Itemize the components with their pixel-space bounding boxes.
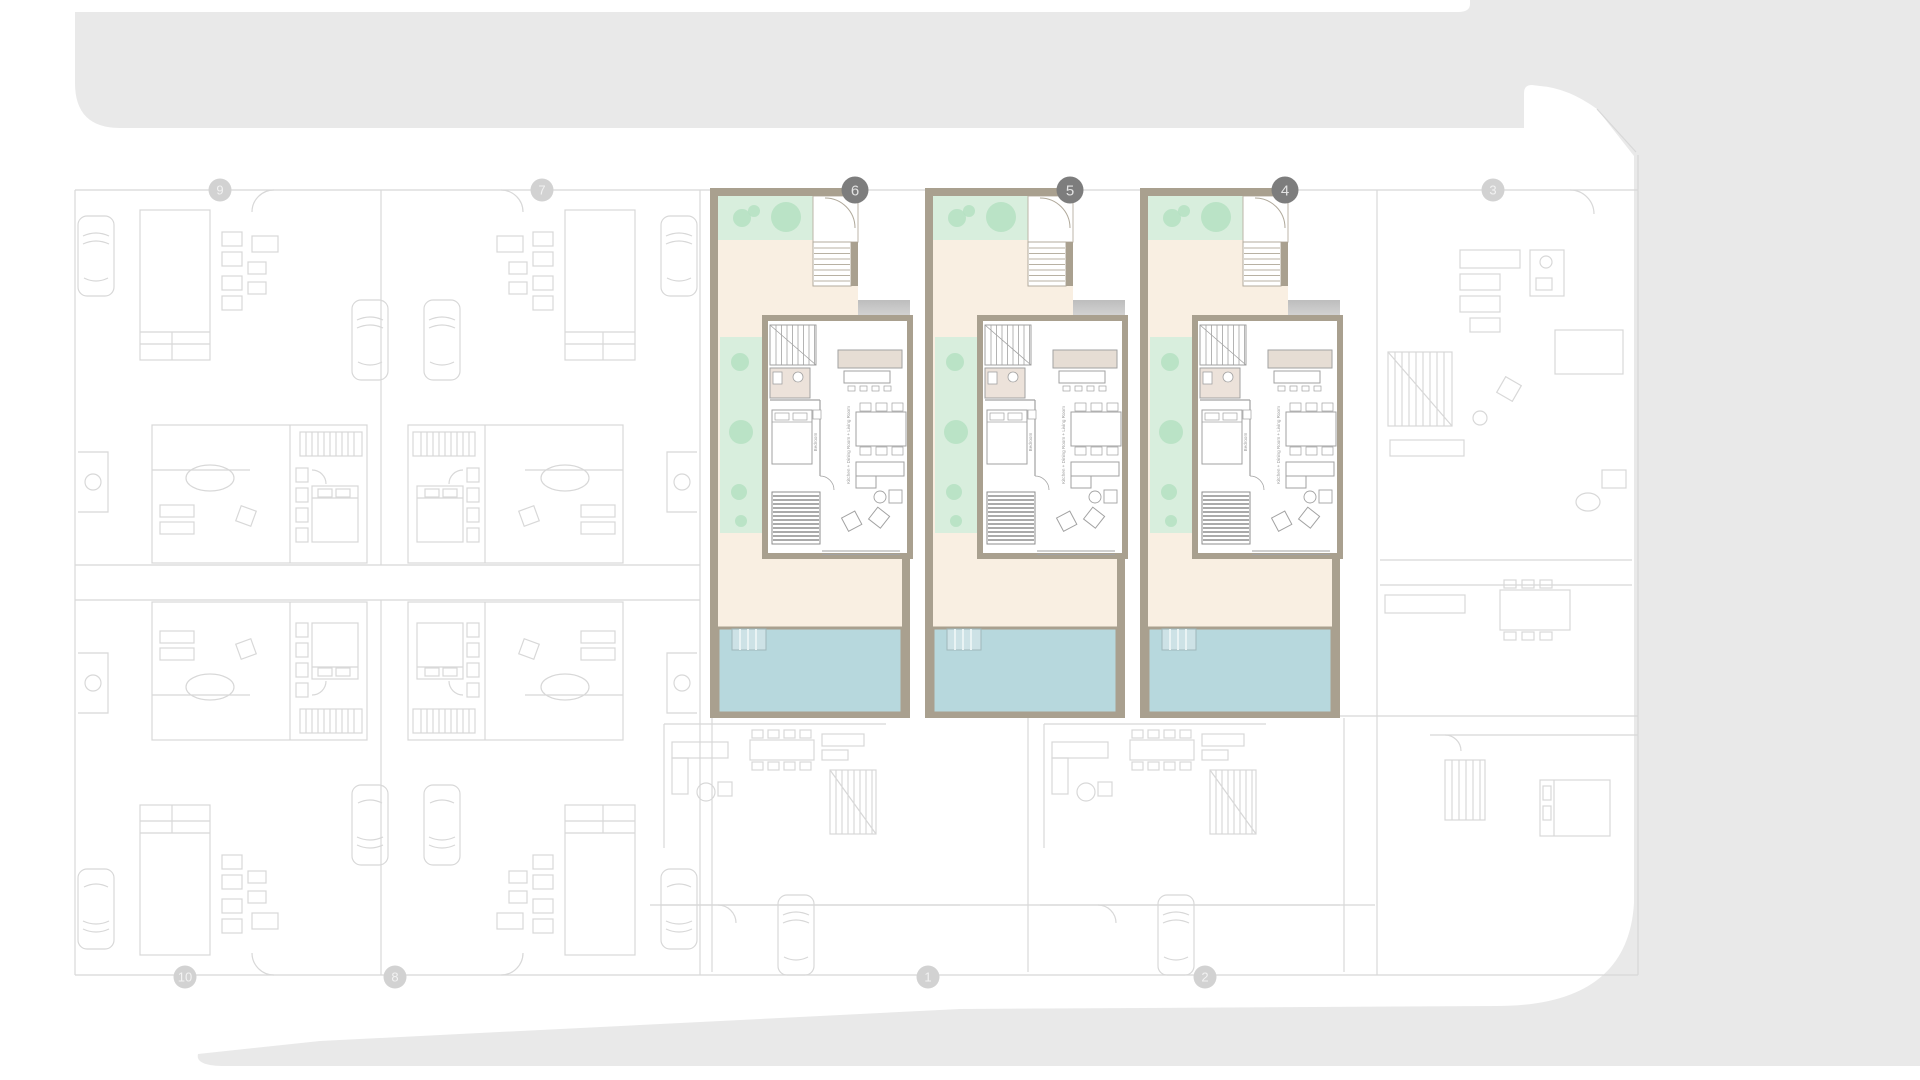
toilet-icon <box>773 372 782 384</box>
room-label-living: Kitchen + Dining Room + Living Room <box>1061 406 1066 484</box>
unit-marker-2: 2 <box>1194 966 1217 989</box>
sink-icon <box>1223 372 1233 382</box>
marker-number: 2 <box>1201 970 1208 985</box>
marker-number: 5 <box>1066 182 1074 199</box>
chair-icon <box>1322 403 1333 411</box>
stool-icon <box>1314 386 1321 391</box>
stool-icon <box>1099 386 1106 391</box>
stool-icon <box>1063 386 1070 391</box>
faded-unit-3 <box>1385 190 1626 836</box>
marker-number: 4 <box>1281 182 1289 199</box>
chair-icon <box>876 403 887 411</box>
sofa-chaise <box>856 476 876 488</box>
tree-icon <box>963 205 975 217</box>
coffee-table <box>1304 491 1316 503</box>
kitchen-counter <box>838 350 902 368</box>
tree-icon <box>950 515 962 527</box>
marker-number: 9 <box>216 183 223 198</box>
stair-side-wall <box>851 242 858 286</box>
toilet-icon <box>1203 372 1212 384</box>
tree-icon <box>1201 202 1231 232</box>
wall-top <box>925 188 1073 196</box>
chair-icon <box>892 447 903 455</box>
marker-number: 10 <box>178 970 192 985</box>
coffee-table <box>1089 491 1101 503</box>
dining-table <box>1071 412 1121 446</box>
tree-icon <box>946 484 962 500</box>
side-table <box>1104 490 1117 503</box>
nightstand <box>813 410 821 419</box>
kitchen-island <box>1274 371 1320 383</box>
nightstand <box>1243 410 1251 419</box>
tree-icon <box>986 202 1016 232</box>
kitchen-island <box>844 371 890 383</box>
wall-top <box>710 188 858 196</box>
stool-icon <box>1290 386 1297 391</box>
dining-table <box>856 412 906 446</box>
site-plan-page: Kitchen + Dining Room + Living RoomBedro… <box>0 0 1920 1080</box>
marker-number: 7 <box>538 183 545 198</box>
sofa <box>1071 462 1119 476</box>
stool-icon <box>848 386 855 391</box>
chair-icon <box>1306 447 1317 455</box>
tree-icon <box>1165 515 1177 527</box>
chair-icon <box>1322 447 1333 455</box>
marker-number: 1 <box>924 970 931 985</box>
sofa <box>1286 462 1334 476</box>
room-label-bedroom: Bedroom <box>813 433 818 452</box>
side-table <box>1319 490 1332 503</box>
pillow <box>1223 413 1237 420</box>
tree-icon <box>944 420 968 444</box>
coffee-table <box>874 491 886 503</box>
tree-icon <box>1159 420 1183 444</box>
chair-icon <box>1075 447 1086 455</box>
chair-icon <box>1075 403 1086 411</box>
tree-icon <box>731 353 749 371</box>
pillow <box>1205 413 1219 420</box>
nightstand <box>1028 410 1036 419</box>
room-label-bedroom: Bedroom <box>1028 433 1033 452</box>
sofa-chaise <box>1071 476 1091 488</box>
toilet-icon <box>988 372 997 384</box>
pillow <box>793 413 807 420</box>
stool-icon <box>1278 386 1285 391</box>
unit-5[interactable]: Kitchen + Dining Room + Living RoomBedro… <box>925 188 1125 718</box>
dining-table <box>1286 412 1336 446</box>
kitchen-counter <box>1053 350 1117 368</box>
unit-6[interactable]: Kitchen + Dining Room + Living RoomBedro… <box>710 188 910 718</box>
highlighted-units-layer: Kitchen + Dining Room + Living RoomBedro… <box>710 188 1340 718</box>
stool-icon <box>1087 386 1094 391</box>
stool-icon <box>1302 386 1309 391</box>
wall-top <box>1140 188 1288 196</box>
chair-icon <box>860 447 871 455</box>
room-label-bedroom: Bedroom <box>1243 433 1248 452</box>
stool-icon <box>872 386 879 391</box>
stair-side-wall <box>1281 242 1288 286</box>
unit-marker-10: 10 <box>174 966 197 989</box>
pillow <box>775 413 789 420</box>
marker-number: 8 <box>391 970 398 985</box>
chair-icon <box>860 403 871 411</box>
stool-icon <box>884 386 891 391</box>
chair-icon <box>1290 447 1301 455</box>
unit-4[interactable]: Kitchen + Dining Room + Living RoomBedro… <box>1140 188 1340 718</box>
stool-icon <box>860 386 867 391</box>
pillow <box>1008 413 1022 420</box>
sink-icon <box>793 372 803 382</box>
unit-marker-5[interactable]: 5 <box>1057 177 1084 204</box>
marker-number: 6 <box>851 182 859 199</box>
chair-icon <box>1107 403 1118 411</box>
tree-icon <box>1161 484 1177 500</box>
side-table <box>889 490 902 503</box>
sofa-chaise <box>1286 476 1306 488</box>
unit-marker-6[interactable]: 6 <box>842 177 869 204</box>
unit-marker-4[interactable]: 4 <box>1272 177 1299 204</box>
sink-icon <box>1008 372 1018 382</box>
pillow <box>990 413 1004 420</box>
tree-icon <box>748 205 760 217</box>
tree-icon <box>735 515 747 527</box>
chair-icon <box>1091 447 1102 455</box>
sofa <box>856 462 904 476</box>
unit-marker-9: 9 <box>209 179 232 202</box>
chair-icon <box>1306 403 1317 411</box>
chair-icon <box>1290 403 1301 411</box>
tree-icon <box>946 353 964 371</box>
stool-icon <box>1075 386 1082 391</box>
tree-icon <box>1161 353 1179 371</box>
room-label-living: Kitchen + Dining Room + Living Room <box>1276 406 1281 484</box>
unit-marker-3: 3 <box>1482 179 1505 202</box>
tree-icon <box>729 420 753 444</box>
unit-marker-1: 1 <box>917 966 940 989</box>
stair-side-wall <box>1066 242 1073 286</box>
floor-plan-canvas: Kitchen + Dining Room + Living RoomBedro… <box>0 0 1920 1080</box>
chair-icon <box>1091 403 1102 411</box>
kitchen-island <box>1059 371 1105 383</box>
marker-number: 3 <box>1489 183 1496 198</box>
room-label-living: Kitchen + Dining Room + Living Room <box>846 406 851 484</box>
chair-icon <box>1107 447 1118 455</box>
unit-marker-7: 7 <box>531 179 554 202</box>
chair-icon <box>892 403 903 411</box>
tree-icon <box>771 202 801 232</box>
unit-marker-8: 8 <box>384 966 407 989</box>
kitchen-counter <box>1268 350 1332 368</box>
tree-icon <box>731 484 747 500</box>
tree-icon <box>1178 205 1190 217</box>
chair-icon <box>876 447 887 455</box>
